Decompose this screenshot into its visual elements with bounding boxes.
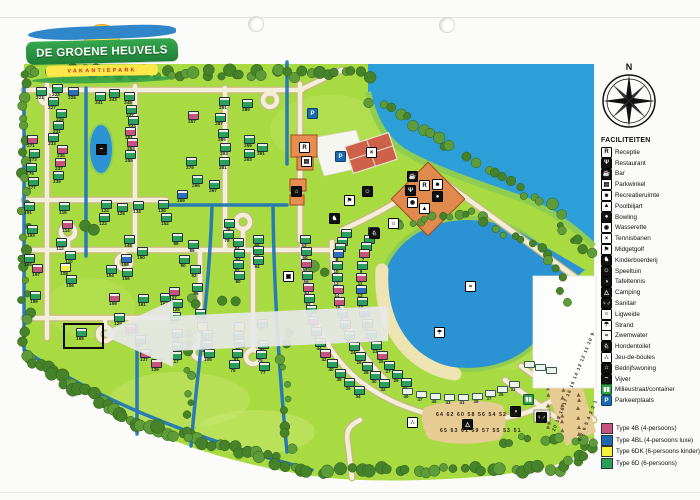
legend-item: ●Bowling [601, 212, 698, 223]
legend-item-label: Jeu-de-boules [615, 354, 655, 361]
wasserette-icon: ◉ [601, 222, 612, 233]
legend-item: △Camping [601, 287, 698, 298]
midgetgolf-icon: ⚑ [601, 244, 612, 255]
vijver-icon: ~ [601, 374, 612, 385]
legend-item: ☂Strand [601, 320, 698, 331]
legend-item: ☕Bar [601, 169, 698, 180]
legend-item-label: Tennisbanen [615, 235, 651, 242]
type-legend: Type 4B (4-persoons)Type 4BL (4-persoons… [601, 423, 700, 469]
type-legend-item: Type 4B (4-persoons) [601, 423, 700, 435]
legend-item: ♘Hondentoilet [601, 341, 698, 352]
legend-item: ▲Poolbiljart [601, 201, 698, 212]
type-color-swatch [601, 423, 613, 434]
pond [89, 124, 113, 174]
camping-icon: △ [601, 287, 612, 298]
park-logo: DE GROENE HEUVELS VAKANTIEPARK [26, 24, 180, 86]
legend-item: ×Tennisbanen [601, 233, 698, 244]
recreatieruimte-icon: ☻ [601, 190, 612, 201]
parkwinkel-icon: ▤ [601, 179, 612, 190]
legend-item-label: Parkwinkel [615, 181, 645, 188]
facilities-legend-rows: RReceptieΨRestaurant☕Bar▤Parkwinkel☻Recr… [601, 147, 698, 406]
legend-item-label: Poolbiljart [615, 203, 643, 210]
type-legend-label: Type 4B (4-persoons) [616, 425, 677, 432]
legend-item: ~Vijver [601, 374, 698, 385]
type-legend-label: Type 4BL (4-persoons luxe) [616, 437, 693, 444]
legend-item: ◉Wasserette [601, 223, 698, 234]
legend-item-label: Vijver [615, 376, 631, 383]
legend-item-label: Ligweide [615, 311, 640, 318]
bar-icon: ☕ [601, 169, 612, 180]
type-color-swatch [601, 458, 613, 469]
type-color-swatch [601, 446, 613, 457]
type-legend-item: Type 6D (6-persoons) [601, 458, 700, 470]
legend-item-label: Milieustraat/container [615, 386, 675, 393]
legend-item-label: Wasserette [615, 224, 647, 231]
sanitair-building [534, 410, 550, 422]
kinderboerderij-icon: ♞ [601, 255, 612, 266]
legend-item: ♀♂Sanitair [601, 298, 698, 309]
legend-item: ◑Tafeltennis [601, 277, 698, 288]
type-legend-label: Type 6DK (6-persoons kinder) [616, 448, 700, 455]
legend-item-label: Recreatieruimte [615, 192, 659, 199]
legend-item: ≈Zwemwater [601, 331, 698, 342]
legend-item: ▮▮Milieustraat/container [601, 385, 698, 396]
tafeltennis-icon: ◑ [601, 276, 612, 287]
hondentoilet-icon: ♘ [601, 341, 612, 352]
legend-item-label: Strand [615, 322, 634, 329]
covered-area [533, 276, 596, 388]
legend-item-label: Bowling [615, 214, 637, 221]
receptie-icon: R [601, 147, 612, 158]
legend-item: ▤Parkwinkel [601, 179, 698, 190]
legend-item-label: Camping [615, 289, 640, 296]
legend-item-label: Sanitair [615, 300, 636, 307]
compass-north-label: N [626, 62, 633, 72]
legend-item: ♞Kinderboerderij [601, 255, 698, 266]
legend-item: ΨRestaurant [601, 158, 698, 169]
compass-rose: N [600, 60, 658, 130]
legend-item-label: Zwemwater [615, 332, 648, 339]
logo-subtitle: VAKANTIEPARK [67, 67, 136, 74]
bedrijfswoning-icon: ⌂ [601, 363, 612, 374]
tennisbanen-icon: × [601, 233, 612, 244]
legend-item-label: Tafeltennis [615, 278, 645, 285]
scanned-park-map-page: 2212232252272292312332352372392412432452… [0, 0, 700, 500]
restaurant-icon: Ψ [601, 158, 612, 169]
facilities-legend-title: FACILITEITEN [601, 137, 698, 144]
legend-item-label: Bedrijfswoning [615, 365, 656, 372]
legend-item: ⚑Midgetgolf [601, 244, 698, 255]
legend-item-label: Midgetgolf [615, 246, 644, 253]
type-color-swatch [601, 435, 613, 446]
legend-item: ☺Speeltuin [601, 266, 698, 277]
legend-item-label: Hondentoilet [615, 343, 650, 350]
legend-item-label: Parkeerplaats [615, 397, 654, 404]
type-legend-label: Type 6D (6-persoons) [616, 460, 677, 467]
legend-item: ∴Jeu-de-boules [601, 352, 698, 363]
legend-item-label: Speeltuin [615, 268, 641, 275]
strand-icon: ☂ [601, 320, 612, 331]
legend-item: RReceptie [601, 147, 698, 158]
camping-field [422, 401, 506, 444]
legend-item-label: Kinderboerderij [615, 257, 658, 264]
type-legend-item: Type 6DK (6-persoons kinder) [601, 446, 700, 458]
legend-item: ☻Recreatieruimte [601, 190, 698, 201]
legend-item-label: Bar [615, 170, 625, 177]
logo-banner: DE GROENE HEUVELS [26, 38, 179, 65]
zwemwater-icon: ≈ [601, 330, 612, 341]
poolbiljart-icon: ▲ [601, 201, 612, 212]
legend-item: ⌂Bedrijfswoning [601, 363, 698, 374]
legend-item: ☼Ligweide [601, 309, 698, 320]
logo-title: DE GROENE HEUVELS [36, 44, 168, 59]
speeltuin-icon: ☺ [601, 266, 612, 277]
milieustraat-container-icon: ▮▮ [601, 384, 612, 395]
highlighted-plot-box [63, 323, 104, 349]
legend-item-label: Restaurant [615, 160, 646, 167]
sanitair-icon: ♀♂ [601, 298, 612, 309]
bowling-icon: ● [601, 212, 612, 223]
facilities-legend: FACILITEITEN RReceptieΨRestaurant☕Bar▤Pa… [601, 137, 698, 406]
type-legend-item: Type 4BL (4-persoons luxe) [601, 435, 700, 447]
legend-item-label: Receptie [615, 149, 640, 156]
legend-item: PParkeerplaats [601, 395, 698, 406]
parkeerplaats-icon: P [601, 395, 612, 406]
jeu-de-boules-icon: ∴ [601, 352, 612, 363]
ligweide-icon: ☼ [601, 309, 612, 320]
